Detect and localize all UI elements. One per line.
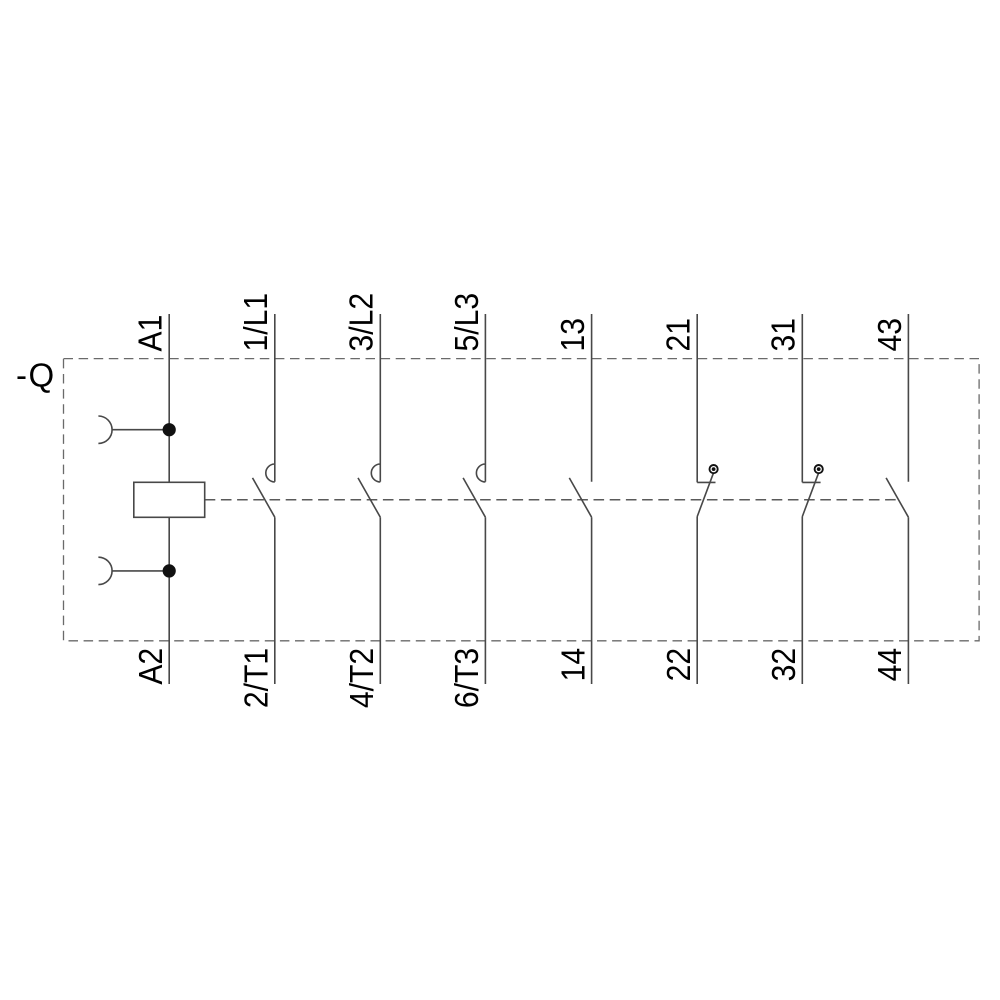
svg-text:43: 43: [870, 318, 908, 352]
svg-text:3/L2: 3/L2: [342, 293, 380, 352]
svg-text:22: 22: [660, 648, 698, 682]
svg-text:44: 44: [871, 648, 909, 682]
svg-text:21: 21: [659, 318, 697, 352]
svg-text:2/T1: 2/T1: [237, 648, 275, 708]
svg-text:13: 13: [554, 318, 592, 352]
svg-text:1/L1: 1/L1: [237, 293, 275, 352]
svg-text:14: 14: [554, 648, 592, 682]
svg-text:5/L3: 5/L3: [447, 293, 485, 352]
svg-text:31: 31: [764, 318, 802, 352]
svg-text:-Q: -Q: [16, 356, 56, 393]
svg-text:A2: A2: [132, 648, 170, 685]
svg-text:6/T3: 6/T3: [448, 648, 486, 708]
svg-text:A1: A1: [131, 315, 169, 352]
svg-text:32: 32: [765, 648, 803, 682]
svg-text:4/T2: 4/T2: [343, 648, 381, 708]
